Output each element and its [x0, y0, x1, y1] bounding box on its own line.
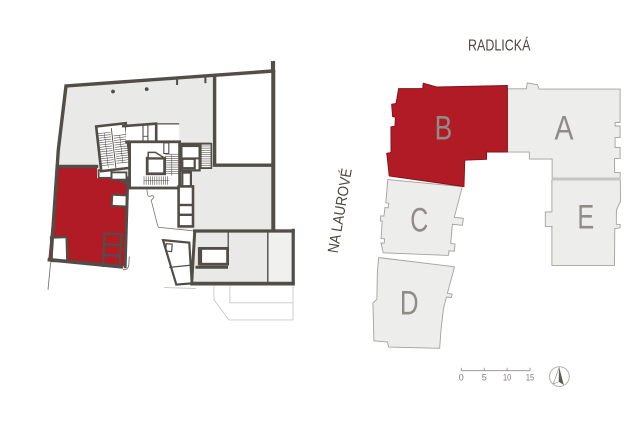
svg-text:15: 15 [526, 373, 534, 384]
svg-text:D: D [400, 285, 419, 323]
svg-text:10: 10 [503, 373, 511, 384]
svg-text:C: C [410, 201, 428, 239]
svg-text:E: E [577, 199, 594, 237]
svg-text:RADLICKÁ: RADLICKÁ [468, 35, 531, 54]
svg-text:A: A [555, 109, 574, 147]
svg-text:B: B [435, 109, 453, 147]
svg-text:5: 5 [482, 373, 487, 384]
svg-text:0: 0 [459, 373, 464, 384]
